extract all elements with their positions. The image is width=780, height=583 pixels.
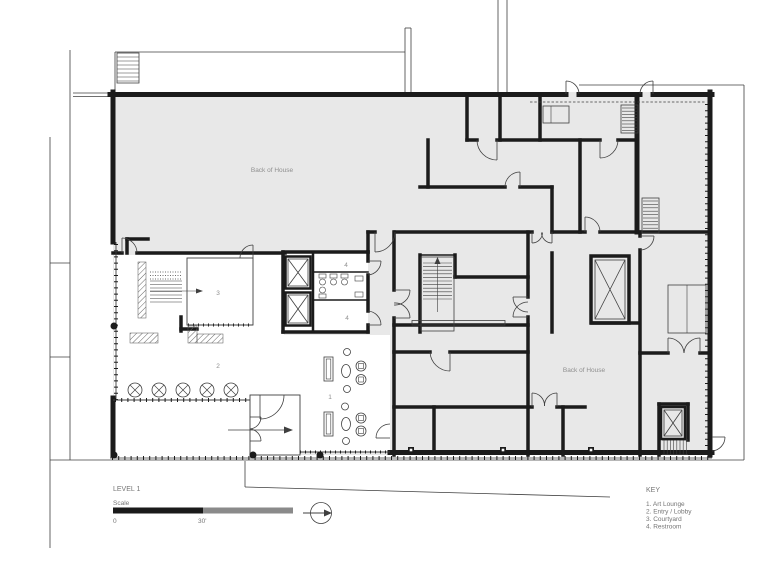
title-block: LEVEL 1 Scale 0 30' <box>113 486 293 525</box>
key-item: 2. Entry / Lobby <box>646 509 692 516</box>
round-column <box>250 452 257 459</box>
key-legend: KEY 1. Art Lounge 2. Entry / Lobby 3. Co… <box>646 487 692 531</box>
room-number-art-lounge: 1 <box>328 394 332 401</box>
scale-zero-label: 0 <box>113 518 117 525</box>
column-x-icon <box>200 383 214 397</box>
room-number-restroom: 4 <box>345 315 349 322</box>
key-item: 1. Art Lounge <box>646 501 685 508</box>
scale-thirty-label: 30' <box>198 518 206 525</box>
room-number-restroom: 4 <box>344 262 348 269</box>
round-column <box>317 452 324 459</box>
exterior-stair-icon <box>117 53 139 83</box>
column-x-icon <box>152 383 166 397</box>
scale-bar-gray <box>203 508 293 514</box>
key-item: 4. Restroom <box>646 524 681 531</box>
column-x-icon <box>224 383 238 397</box>
north-arrow-icon <box>303 503 332 524</box>
floor-plan-page: Back of House Back of House 3 2 1 4 4 LE… <box>0 0 780 583</box>
drawing-title: LEVEL 1 <box>113 486 140 493</box>
floor-fills <box>113 92 712 458</box>
round-column <box>111 323 118 330</box>
room-number-entry-lobby: 2 <box>216 363 220 370</box>
round-column <box>111 452 118 459</box>
bench <box>324 412 333 436</box>
column-x-icon <box>176 383 190 397</box>
room-number-courtyard: 3 <box>216 290 220 297</box>
back-of-house-label: Back of House <box>563 367 606 374</box>
bench <box>324 357 333 381</box>
back-of-house-label: Back of House <box>251 167 294 174</box>
key-item: 3. Courtyard <box>646 516 682 523</box>
floor-plan-canvas: Back of House Back of House 3 2 1 4 4 LE… <box>0 0 780 583</box>
key-title: KEY <box>646 487 660 494</box>
scale-bar-black <box>113 508 203 514</box>
scale-label: Scale <box>113 500 130 507</box>
column-x-icon <box>128 383 142 397</box>
